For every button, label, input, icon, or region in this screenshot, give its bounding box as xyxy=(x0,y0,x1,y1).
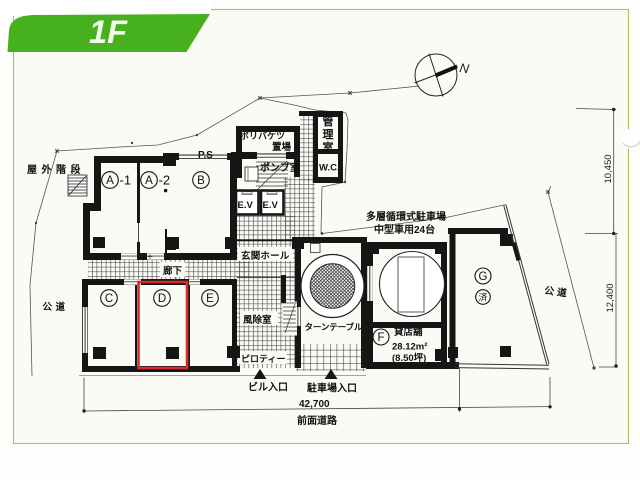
svg-text:玄関ホール: 玄関ホール xyxy=(241,250,290,262)
svg-text:ピロティー: ピロティー xyxy=(241,353,285,364)
svg-text:-1: -1 xyxy=(120,173,132,188)
svg-text:廊下: 廊下 xyxy=(163,265,183,277)
svg-text:室: 室 xyxy=(323,140,334,154)
svg-text:A: A xyxy=(145,175,153,187)
svg-text:(8.50坪): (8.50坪) xyxy=(392,352,426,364)
svg-text:多層循環式駐車場: 多層循環式駐車場 xyxy=(366,210,446,223)
svg-text:G: G xyxy=(479,271,488,283)
svg-text:管: 管 xyxy=(323,114,334,128)
svg-text:ポリバケツ: ポリバケツ xyxy=(240,130,285,141)
svg-text:E.V: E.V xyxy=(238,200,254,211)
svg-text:屋外階段: 屋外階段 xyxy=(27,163,85,176)
svg-text:中型車用24台: 中型車用24台 xyxy=(374,223,435,236)
svg-text:10,450: 10,450 xyxy=(603,154,614,183)
svg-text:E.V: E.V xyxy=(263,200,279,211)
svg-text:28.12m²: 28.12m² xyxy=(392,342,427,353)
svg-text:ポンプ室: ポンプ室 xyxy=(260,161,300,174)
svg-text:C: C xyxy=(105,293,113,305)
svg-text:駐車場入口: 駐車場入口 xyxy=(307,382,357,395)
svg-text:W.C.: W.C. xyxy=(319,163,340,174)
svg-text:-2: -2 xyxy=(159,173,171,188)
svg-text:42,700: 42,700 xyxy=(299,399,330,410)
svg-text:1F: 1F xyxy=(89,14,128,50)
svg-text:D: D xyxy=(158,293,166,305)
svg-text:置場: 置場 xyxy=(272,141,292,153)
svg-text:12,400: 12,400 xyxy=(605,283,616,312)
svg-text:E: E xyxy=(206,293,214,305)
svg-text:済: 済 xyxy=(478,292,487,303)
svg-text:ビル入口: ビル入口 xyxy=(248,381,288,394)
svg-text:風除室: 風除室 xyxy=(243,314,272,326)
svg-text:公道: 公道 xyxy=(43,301,69,313)
svg-text:B: B xyxy=(197,175,205,187)
svg-text:前面道路: 前面道路 xyxy=(297,414,338,427)
svg-text:ターンテーブル: ターンテーブル xyxy=(305,321,363,332)
svg-text:理: 理 xyxy=(323,128,334,141)
svg-text:P.S: P.S xyxy=(198,150,213,161)
svg-text:A: A xyxy=(106,175,114,187)
svg-text:F: F xyxy=(377,332,384,344)
svg-text:貸店舗: 貸店舗 xyxy=(393,326,423,338)
